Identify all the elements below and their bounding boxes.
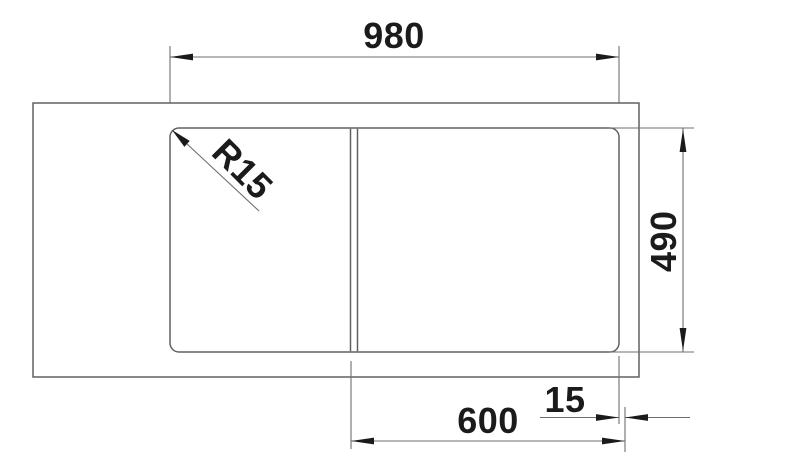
arrowhead-right-icon — [596, 54, 619, 61]
countertop-outline-group — [33, 103, 639, 377]
arrowhead-up-icon — [680, 129, 687, 152]
arrowhead-left-icon — [351, 438, 374, 445]
dim-overall-width-label: 980 — [363, 15, 425, 56]
drawing-canvas: 980 R15 490 600 15 — [0, 0, 800, 463]
dim-bowl-width-label: 600 — [457, 400, 519, 441]
arrowhead-left-icon — [625, 414, 648, 421]
countertop-outline — [33, 103, 639, 377]
sink-technical-drawing: 980 R15 490 600 15 — [0, 0, 800, 463]
arrowhead-left-icon — [170, 54, 193, 61]
dim-overall-width-group: 980 — [170, 15, 619, 103]
dim-edge-offset-group: 15 — [540, 356, 690, 424]
arrowhead-right-icon — [602, 438, 625, 445]
radius-label: R15 — [204, 131, 281, 208]
dim-edge-offset-label: 15 — [544, 379, 585, 420]
dim-depth-label: 490 — [643, 210, 684, 272]
dim-depth-group: 490 — [608, 128, 694, 352]
arrowhead-down-icon — [680, 328, 687, 351]
radius-callout-group: R15 — [172, 130, 281, 211]
arrowhead-right-icon — [596, 414, 619, 421]
